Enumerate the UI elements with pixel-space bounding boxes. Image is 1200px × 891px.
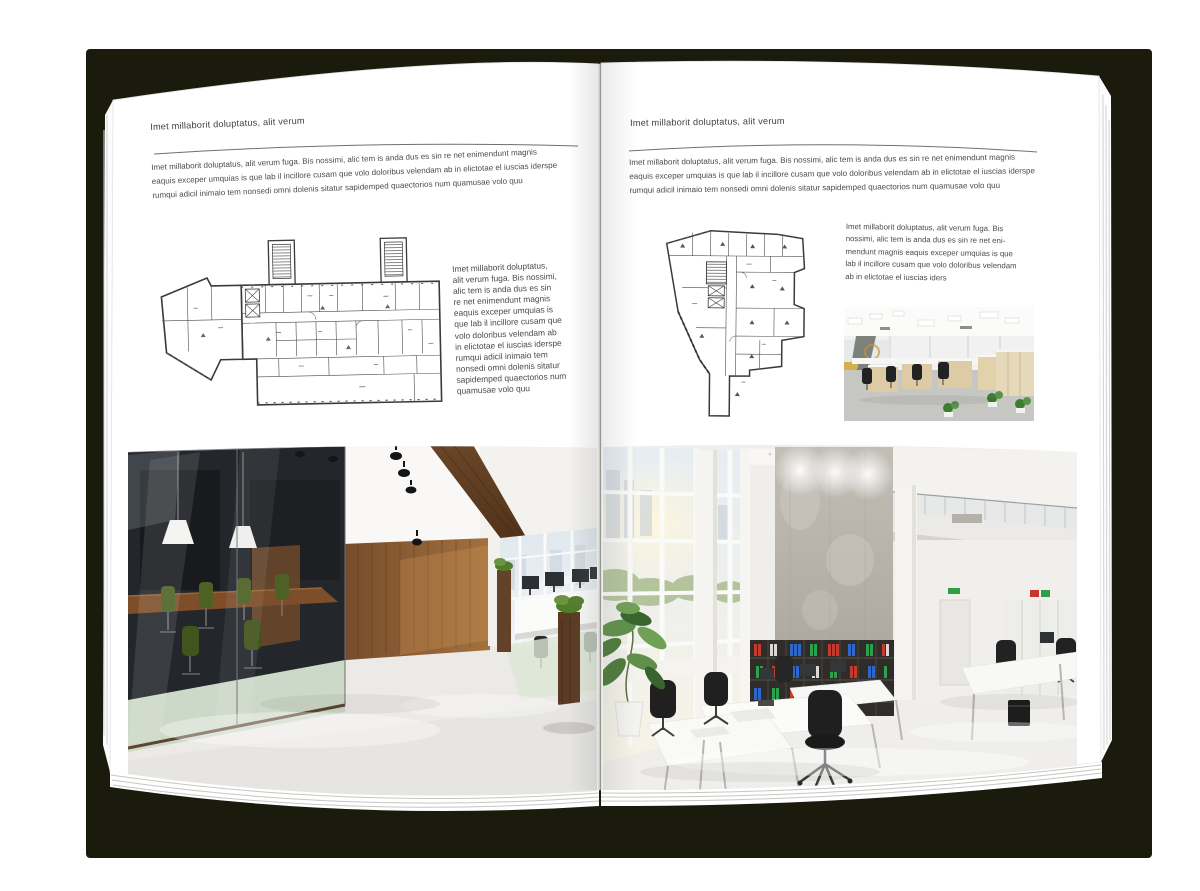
left-page-side-text: Imet millaborit doluptatus, alit verum f… bbox=[452, 260, 567, 397]
book-base: 6 bbox=[0, 0, 1200, 891]
photo-small-office bbox=[840, 302, 1038, 426]
right-page-intro: Imet millaborit doluptatus, alit verum f… bbox=[629, 150, 1035, 197]
floor-plan-left bbox=[156, 233, 450, 417]
side-cabinets bbox=[996, 349, 1034, 396]
right-page-side-text: Imet millaborit doluptatus, alit verum f… bbox=[845, 221, 1017, 285]
spine-shade-left bbox=[568, 64, 599, 790]
floor-plan-right bbox=[651, 223, 815, 422]
safety-sign bbox=[1041, 590, 1050, 597]
main-wing-outline bbox=[241, 281, 441, 405]
left-wing-outline bbox=[161, 277, 243, 381]
photo-right-office: 6 bbox=[585, 441, 1090, 795]
concrete-feature-wall bbox=[774, 444, 894, 643]
side-line: ab in elictotae el iuscias iders bbox=[845, 271, 1016, 286]
photo-left-office bbox=[128, 443, 597, 808]
first-aid-sign bbox=[1030, 590, 1039, 597]
tower-outline bbox=[665, 230, 805, 416]
magazine-spread-mockup: 6 bbox=[0, 0, 1200, 891]
exit-sign bbox=[948, 588, 960, 594]
